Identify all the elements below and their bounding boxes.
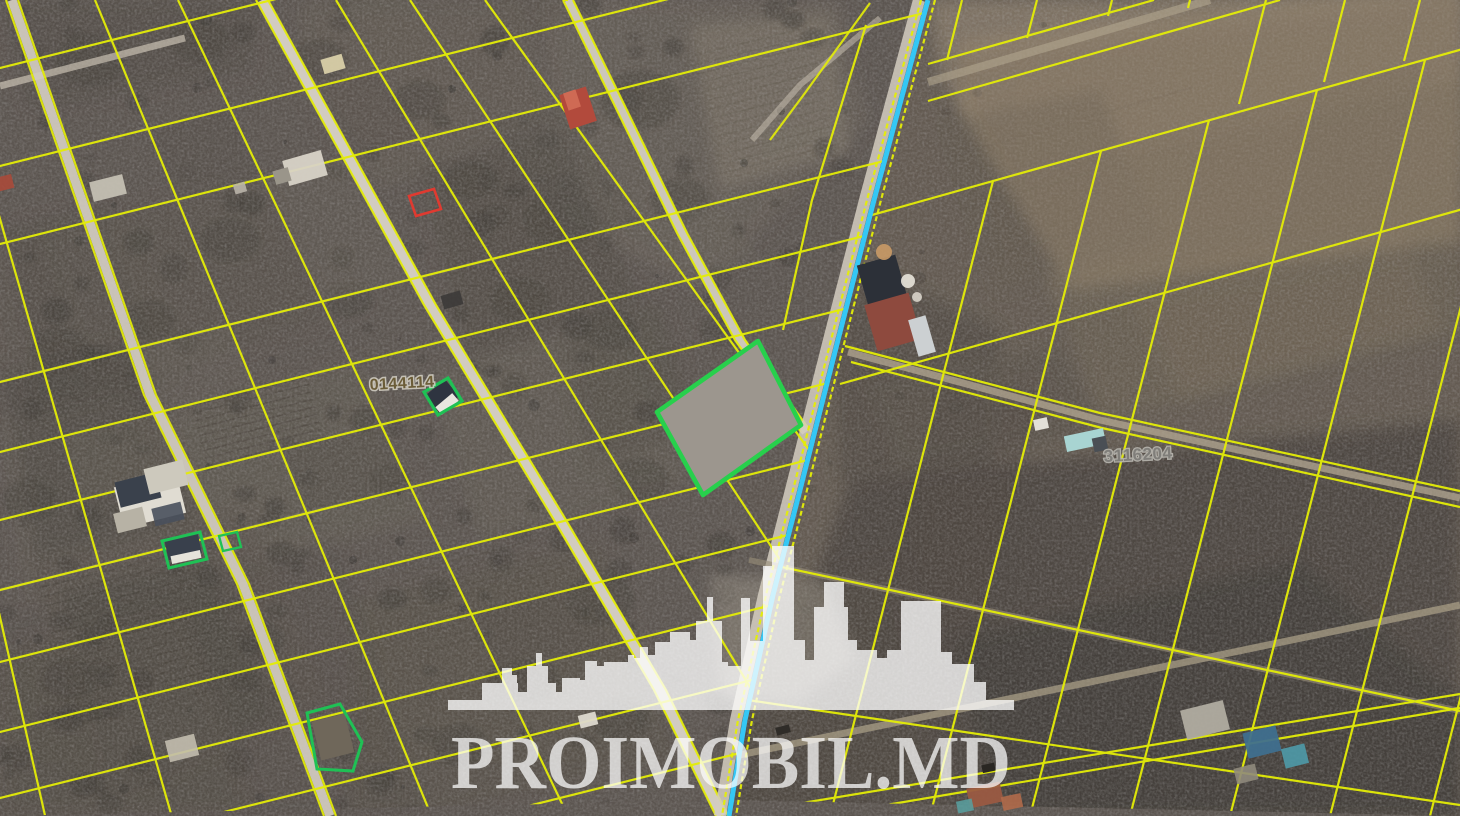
svg-text:PROIMOBIL.MD: PROIMOBIL.MD xyxy=(451,721,1011,805)
svg-text:3116204: 3116204 xyxy=(1103,443,1173,466)
svg-text:0144114: 0144114 xyxy=(369,374,435,394)
